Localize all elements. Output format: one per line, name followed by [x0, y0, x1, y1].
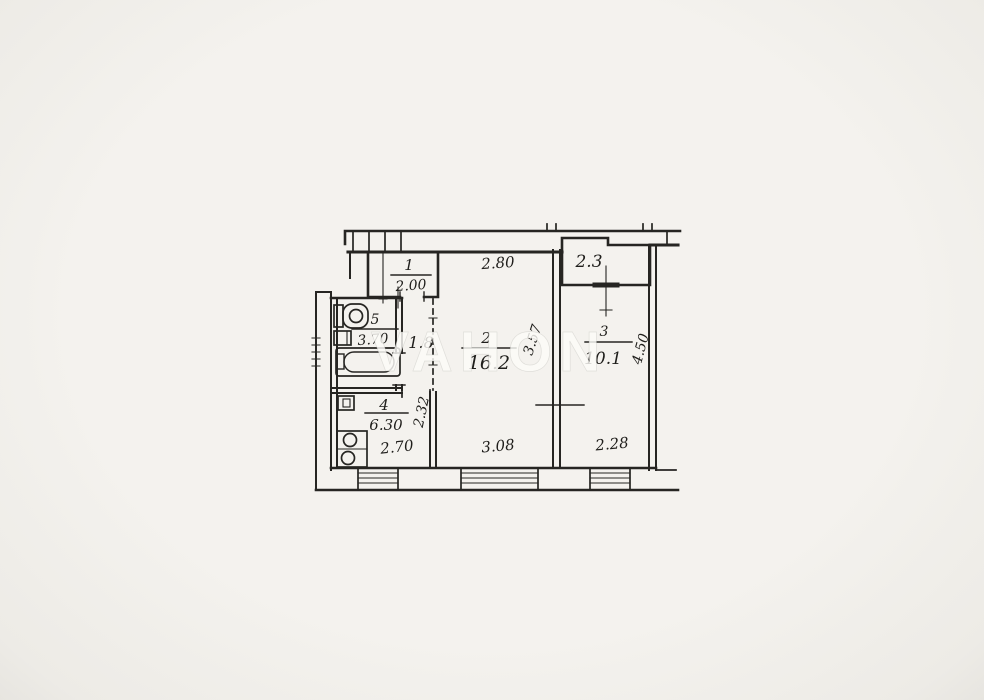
stairwell-hatch — [353, 231, 401, 252]
left-outer-wall — [316, 292, 331, 490]
bathroom-bottom-wall — [331, 388, 402, 393]
bedroom-window-jambs — [590, 468, 630, 490]
kitchen-area-label: 6.30 — [369, 416, 403, 434]
scanned-floor-plan-page: 1 2.00 2.80 2.3 5 3.70 1.8 2 16.2 3.57 3… — [0, 0, 984, 700]
balcony-area-label: 2.3 — [574, 252, 602, 272]
kitchen-door-jambs — [402, 388, 430, 398]
watermark-text: VAHON — [371, 320, 608, 384]
living-window-jambs — [461, 468, 538, 490]
floor-plan: 1 2.00 2.80 2.3 5 3.70 1.8 2 16.2 3.57 3… — [0, 0, 984, 700]
top-width-label: 2.80 — [480, 253, 516, 273]
living-room-window — [461, 473, 538, 483]
outer-top-wall — [345, 231, 680, 244]
balcony-dimension-line — [600, 266, 612, 316]
living-width-label: 3.08 — [480, 436, 515, 457]
stove-icon — [337, 431, 367, 467]
kitchen-window-jambs — [358, 468, 398, 490]
kitchen-sink-icon — [338, 396, 354, 410]
kitchen-width-label: 2.70 — [378, 436, 415, 458]
kitchen-number-label: 4 — [378, 396, 389, 414]
hall-area-label: 2.00 — [394, 277, 427, 295]
hall-number-label: 1 — [404, 256, 414, 274]
bedroom-width-label: 2.28 — [593, 434, 629, 455]
bedroom-window — [590, 473, 630, 483]
kitchen-window — [358, 473, 398, 483]
toilet-icon — [334, 304, 368, 328]
